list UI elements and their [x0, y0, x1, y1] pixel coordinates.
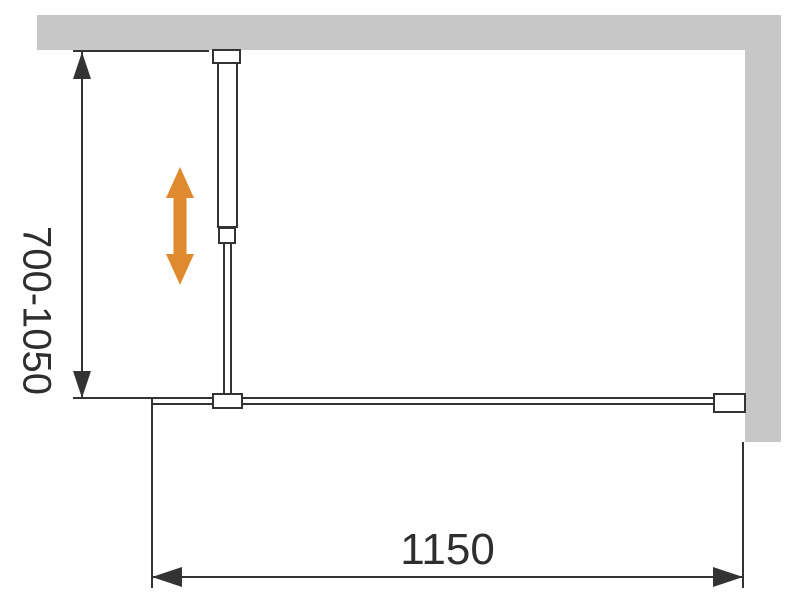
extension-line-top — [73, 50, 209, 52]
width-dimension-label: 1150 — [152, 528, 743, 572]
dimension-arrow-down-icon — [73, 371, 91, 398]
installation-diagram: 700-1050 1150 — [0, 0, 800, 599]
support-rod-lower — [223, 242, 232, 395]
glass-panel-top-edge — [73, 397, 714, 399]
adjustability-arrow-icon — [164, 166, 196, 286]
width-dimension-line — [152, 576, 743, 578]
wall-top — [37, 15, 781, 50]
wall-right — [745, 15, 781, 442]
support-rod-upper — [217, 62, 238, 228]
height-dimension-line — [81, 52, 83, 398]
dimension-arrow-up-icon — [73, 52, 91, 79]
wall-mount-bracket — [713, 393, 746, 413]
glass-clamp — [212, 393, 243, 409]
